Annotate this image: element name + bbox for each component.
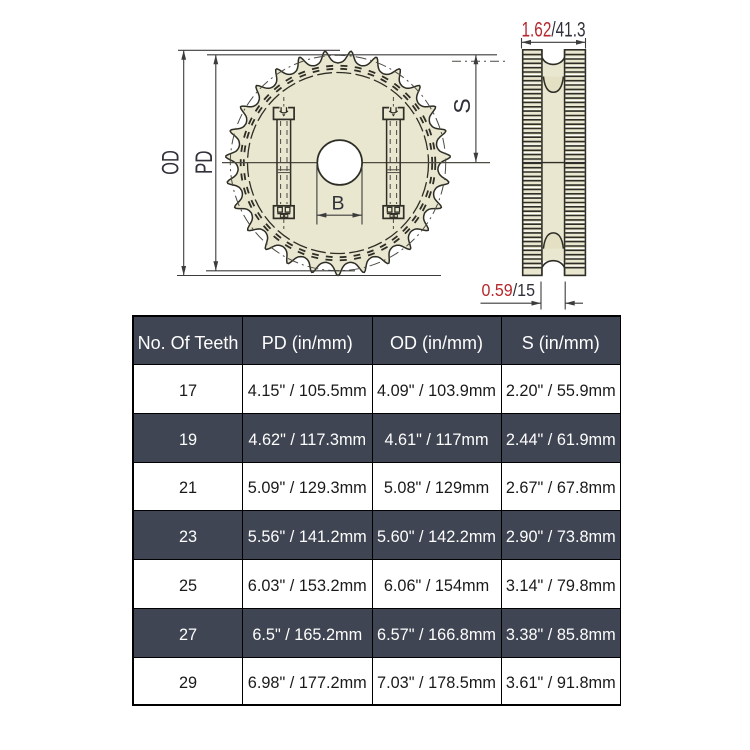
svg-text:B: B xyxy=(331,193,344,215)
svg-text:S: S xyxy=(449,98,475,113)
svg-text:PD: PD xyxy=(191,151,218,175)
svg-text:OD: OD xyxy=(158,150,185,175)
svg-text:0.59/15: 0.59/15 xyxy=(482,280,536,300)
svg-text:1.62/41.3: 1.62/41.3 xyxy=(522,18,586,42)
